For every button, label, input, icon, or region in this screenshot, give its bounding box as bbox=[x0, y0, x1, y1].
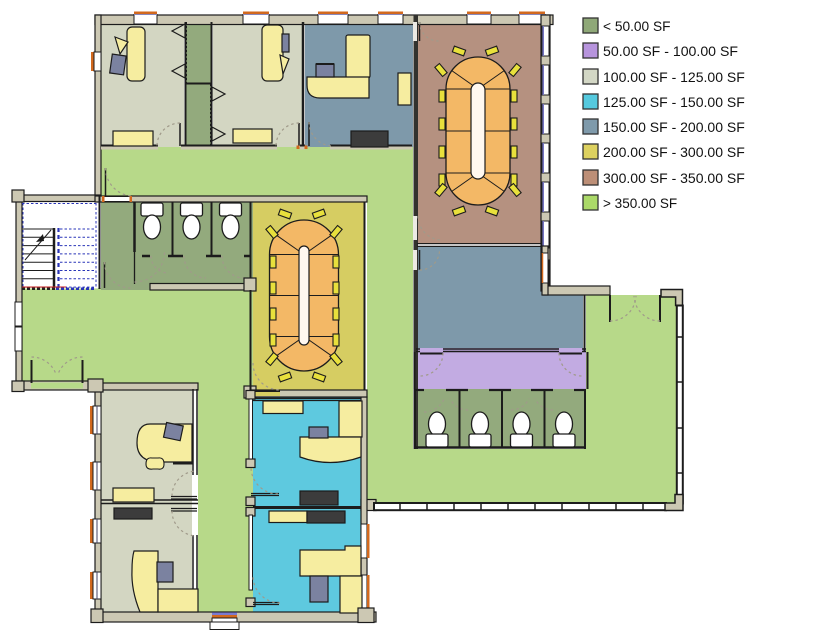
svg-text:> 350.00 SF: > 350.00 SF bbox=[603, 195, 677, 211]
svg-text:125.00 SF - 150.00 SF: 125.00 SF - 150.00 SF bbox=[603, 94, 745, 110]
svg-text:100.00 SF - 125.00 SF: 100.00 SF - 125.00 SF bbox=[603, 69, 745, 85]
svg-text:300.00 SF - 350.00 SF: 300.00 SF - 350.00 SF bbox=[603, 170, 745, 186]
svg-text:150.00 SF - 200.00 SF: 150.00 SF - 200.00 SF bbox=[603, 119, 745, 135]
svg-text:200.00 SF - 300.00 SF: 200.00 SF - 300.00 SF bbox=[603, 144, 745, 160]
svg-text:50.00 SF - 100.00 SF: 50.00 SF - 100.00 SF bbox=[603, 43, 738, 59]
svg-text:< 50.00 SF: < 50.00 SF bbox=[603, 18, 671, 34]
